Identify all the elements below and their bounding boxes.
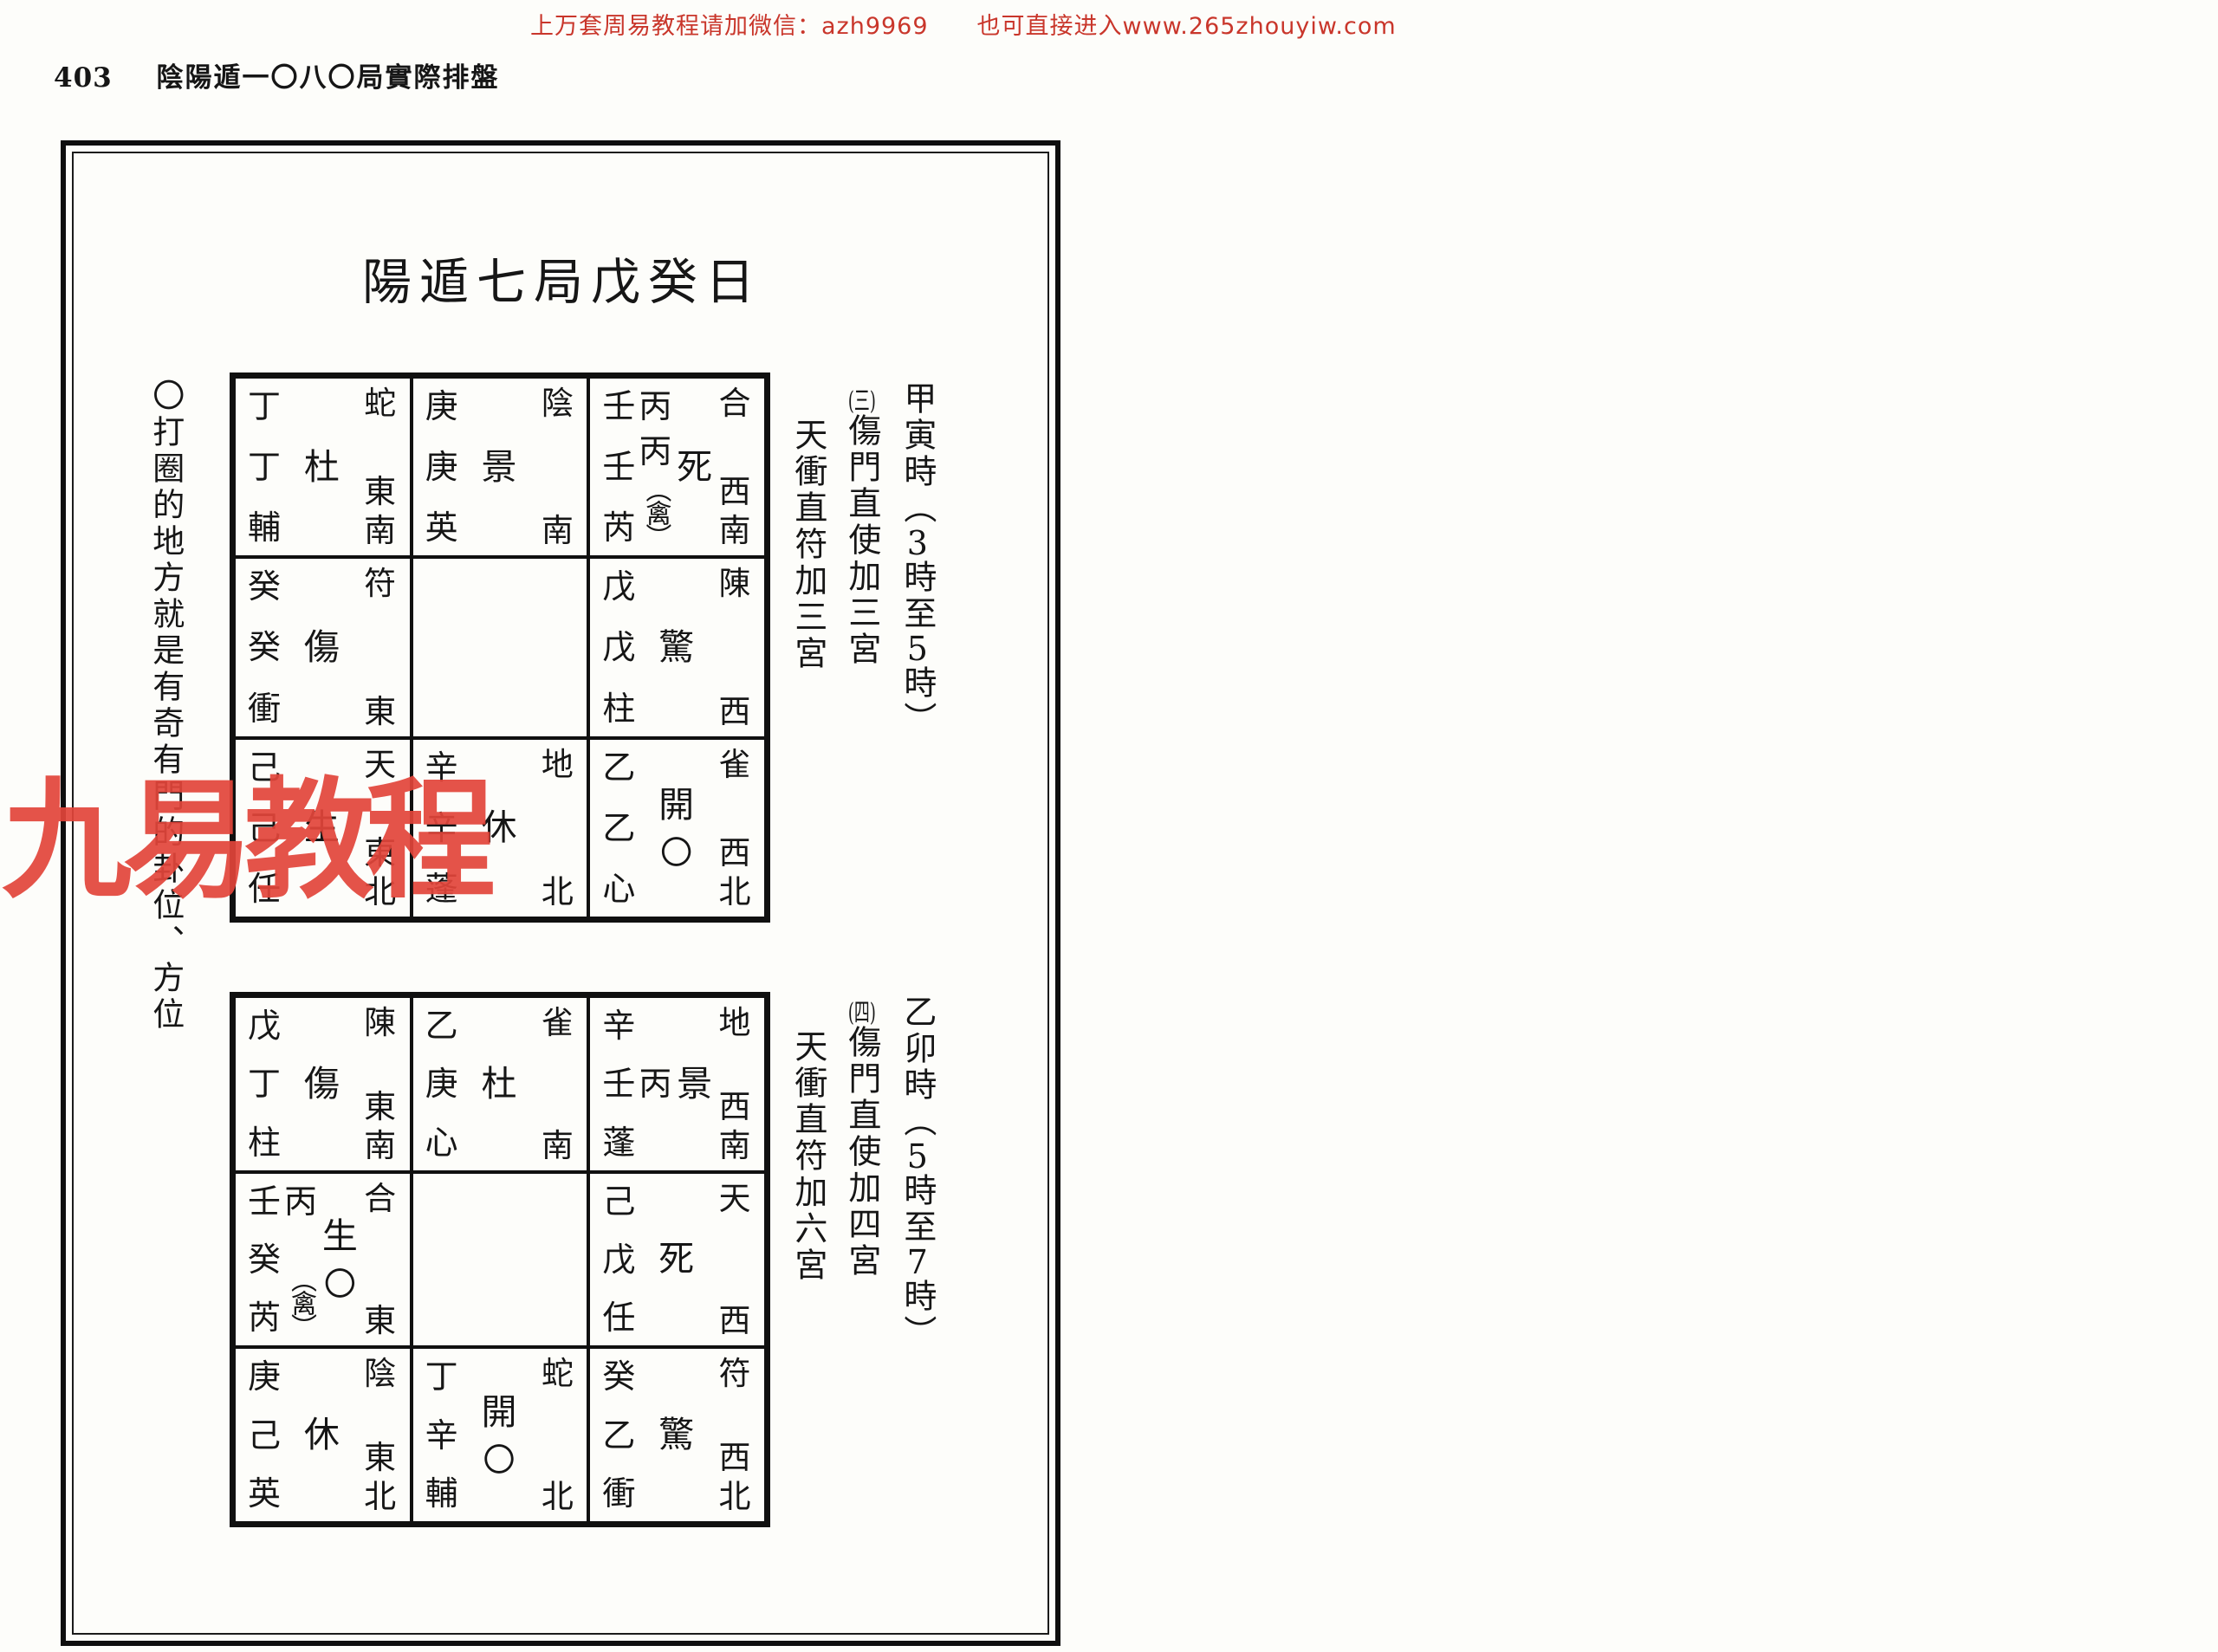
duty-star-note-jiayin: 天衝直符加三宮 — [790, 418, 825, 672]
hour-label-yimao: 乙卯時（5時至7時） — [899, 994, 934, 1351]
book-section-title: 陰陽遁一〇八〇局實際排盤 — [157, 62, 500, 94]
palace-cell — [412, 1172, 589, 1348]
promo-banner-text: 上万套周易教程请加微信：azh9969 也可直接进入www.265zhouyiw… — [530, 7, 1397, 41]
palace-cell: 壬癸芮丙（禽）生〇合東 — [234, 1172, 412, 1348]
palace-cell: 己戊任死天西 — [588, 1172, 766, 1348]
page-header: 403 陰陽遁一〇八〇局實際排盤 — [54, 55, 500, 94]
legend-note-vertical: 〇打圈的地方就是有奇有門的卦位、方位 — [147, 379, 183, 1063]
palace-cell: 庚庚英景陰南 — [412, 377, 589, 557]
palace-cell: 乙庚心杜雀南 — [412, 996, 589, 1172]
qimen-grid-yimao: 戊丁柱傷陳東南乙庚心杜雀南辛壬蓬丙景地西南壬癸芮丙（禽）生〇合東己戊任死天西庚己… — [230, 992, 770, 1527]
palace-cell: 庚己英休陰東北 — [234, 1347, 412, 1523]
palace-cell: 戊戊柱驚陳西 — [588, 557, 766, 737]
palace-cell — [412, 557, 589, 737]
palace-cell: 丁辛輔開〇蛇北 — [412, 1347, 589, 1523]
sequence-marker: (四) — [847, 1000, 877, 1025]
duty-gate-note-jiayin: (三)傷門直使加三宮 — [844, 388, 879, 668]
page-number: 403 — [54, 62, 113, 94]
hour-label-jiayin: 甲寅時（3時至5時） — [899, 381, 934, 738]
chart-title: 陽遁七局戊癸日 — [362, 243, 762, 314]
palace-cell: 丁丁輔杜蛇東南 — [234, 377, 412, 557]
palace-cell: 戊丁柱傷陳東南 — [234, 996, 412, 1172]
sequence-marker: (三) — [847, 388, 877, 413]
palace-cell: 癸癸衝傷符東 — [234, 557, 412, 737]
duty-star-note-yimao: 天衝直符加六宮 — [790, 1029, 825, 1284]
palace-cell: 乙乙心開〇雀西北 — [588, 738, 766, 918]
red-watermark: 九易教程 — [2, 776, 487, 906]
scanned-book-page: { "top_banner": "上万套周易教程请加微信：azh9969 也可直… — [0, 0, 2218, 1652]
duty-gate-note-yimao: (四)傷門直使加四宮 — [844, 1000, 879, 1279]
palace-cell: 辛壬蓬丙景地西南 — [588, 996, 766, 1172]
palace-cell: 癸乙衝驚符西北 — [588, 1347, 766, 1523]
palace-cell: 壬壬芮丙丙（禽）死合西南 — [588, 377, 766, 557]
